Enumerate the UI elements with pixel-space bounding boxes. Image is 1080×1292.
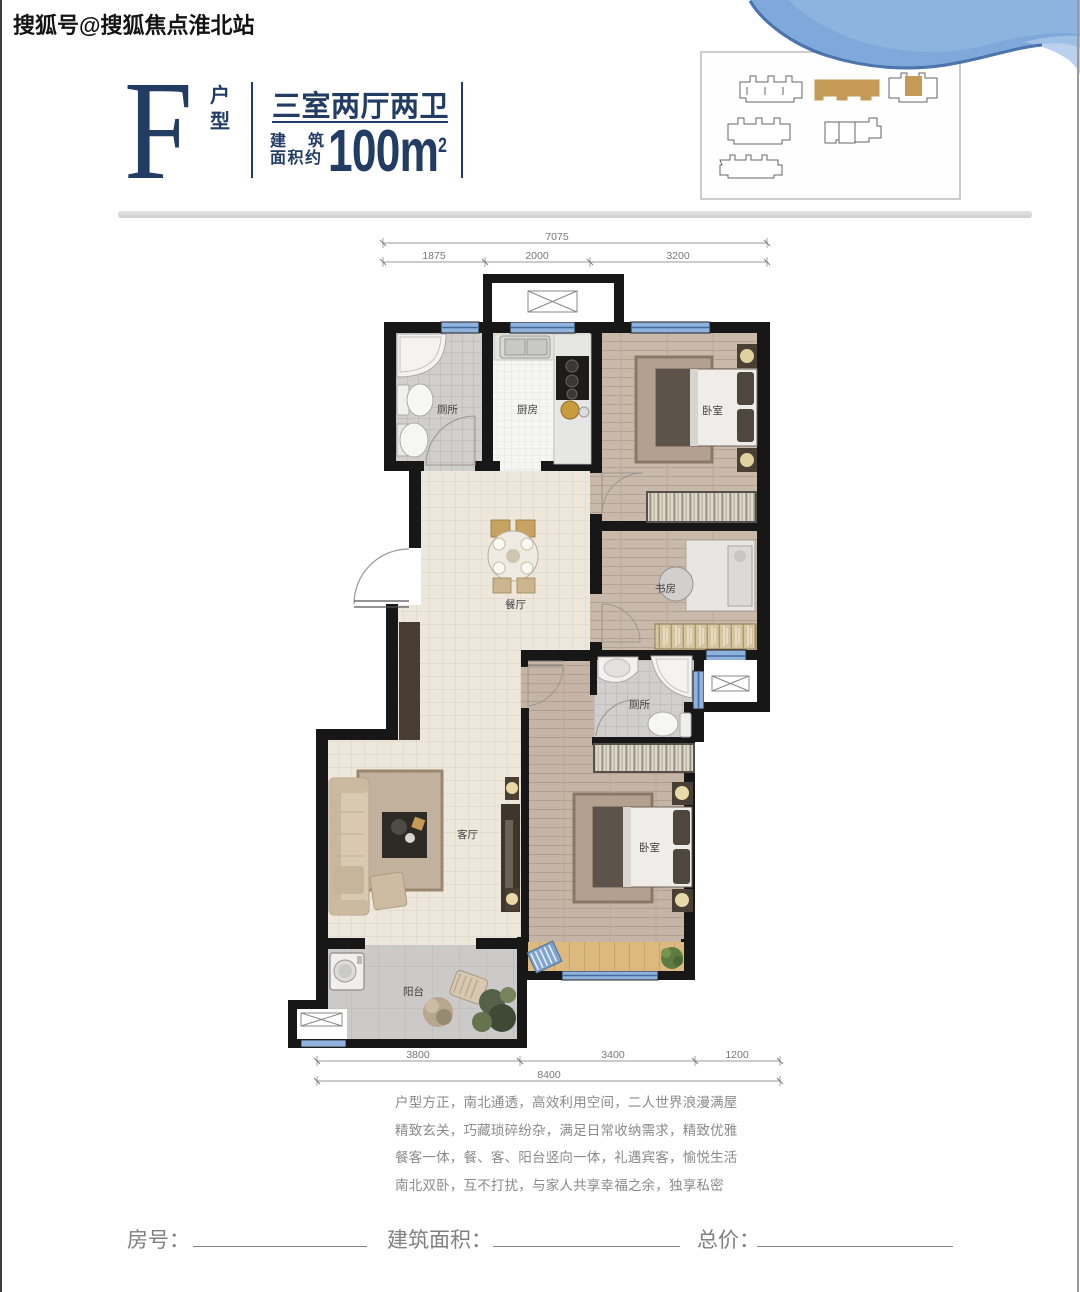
svg-text:2000: 2000 xyxy=(525,250,549,262)
svg-text:厨房: 厨房 xyxy=(517,403,538,416)
svg-text:3800: 3800 xyxy=(406,1049,430,1061)
svg-text:3400: 3400 xyxy=(601,1049,625,1061)
svg-text:8400: 8400 xyxy=(537,1069,561,1081)
svg-text:卧室: 卧室 xyxy=(639,841,660,854)
svg-text:书房: 书房 xyxy=(655,582,676,595)
svg-text:厕所: 厕所 xyxy=(437,404,458,416)
svg-text:厕所: 厕所 xyxy=(629,699,650,711)
svg-text:卧室: 卧室 xyxy=(702,404,723,417)
svg-text:餐厅: 餐厅 xyxy=(505,598,526,611)
svg-text:1200: 1200 xyxy=(725,1049,749,1061)
svg-text:阳台: 阳台 xyxy=(403,985,424,998)
svg-text:1875: 1875 xyxy=(422,250,446,262)
svg-text:客厅: 客厅 xyxy=(457,828,478,841)
svg-text:3200: 3200 xyxy=(666,250,690,262)
svg-text:7075: 7075 xyxy=(545,231,569,243)
